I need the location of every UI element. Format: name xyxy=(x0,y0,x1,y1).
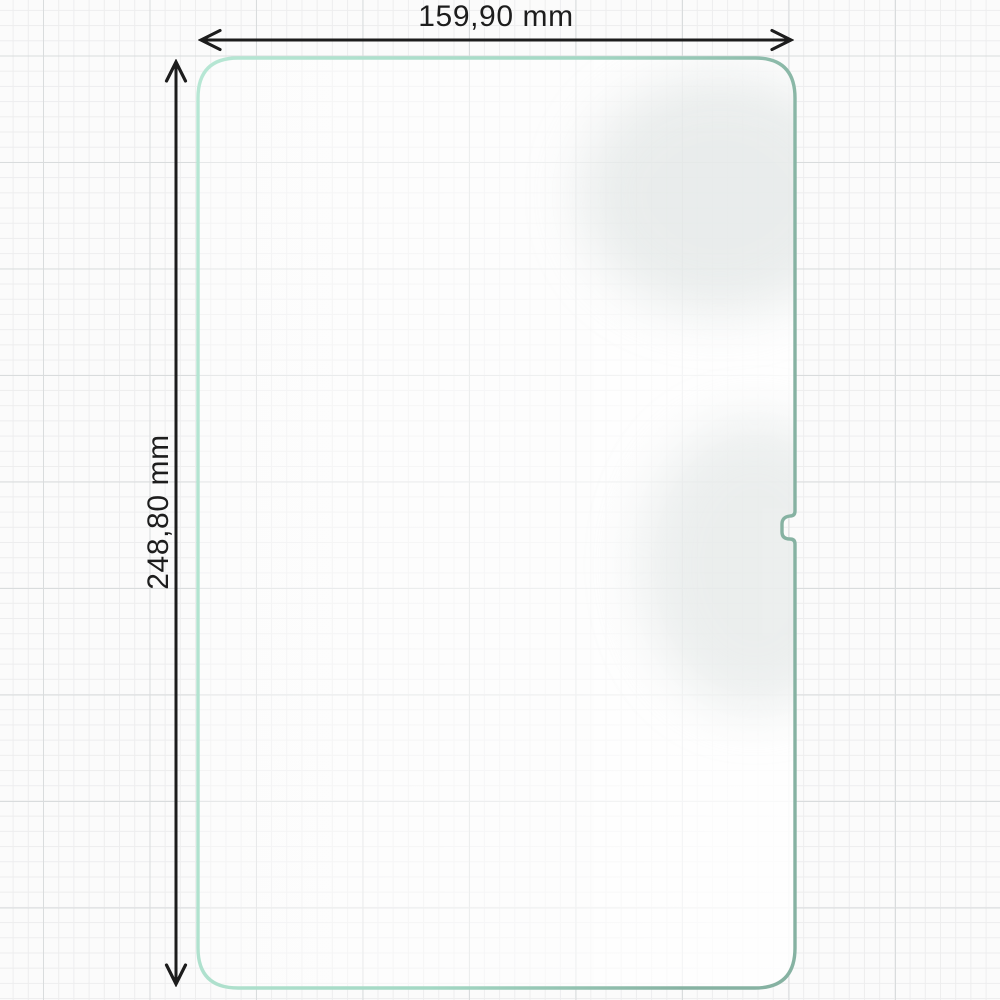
graph-paper-background: 159,90 mm 248,80 mm xyxy=(0,0,1000,1000)
width-dimension-label: 159,90 mm xyxy=(197,0,795,34)
height-dimension-label: 248,80 mm xyxy=(143,362,175,662)
